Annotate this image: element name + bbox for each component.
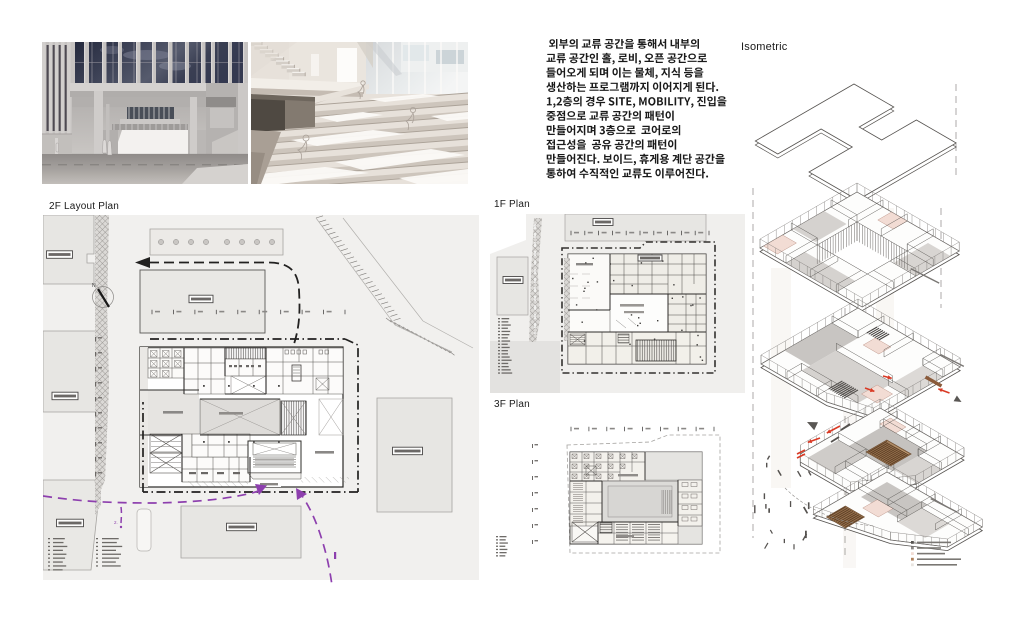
svg-text:2.: 2. (114, 520, 118, 525)
svg-text:N: N (92, 283, 96, 289)
